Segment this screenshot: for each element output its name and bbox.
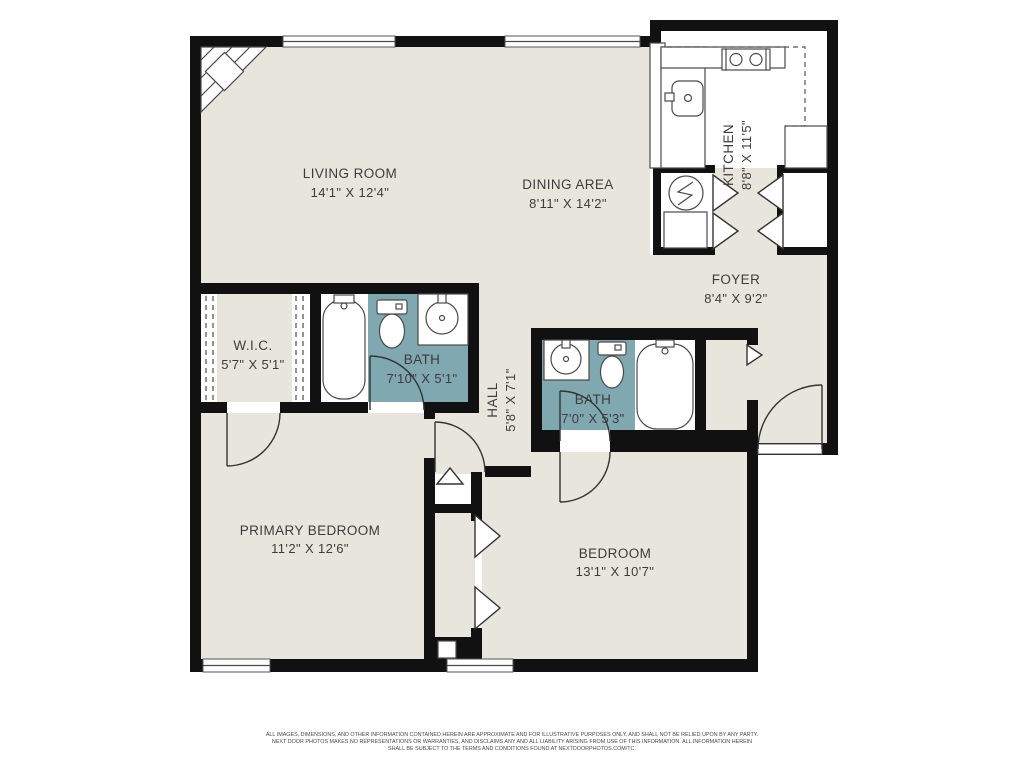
bedroom-dims: 13'1" X 10'7" xyxy=(576,564,655,579)
wall-segment xyxy=(531,328,758,340)
hall-label: HALL xyxy=(485,382,500,417)
hall-dims: 5'8" X 7'1" xyxy=(503,368,518,431)
disclaimer-line: NEXT DOOR PHOTOS MAKES NO REPRESENTATION… xyxy=(272,739,752,745)
living-room-dims: 14'1" X 12'4" xyxy=(311,185,390,200)
water-heater-icon xyxy=(664,176,707,248)
disclaimer: ALL IMAGES, DIMENSIONS, AND OTHER INFORM… xyxy=(266,732,758,752)
wall-segment xyxy=(650,20,838,31)
dining-area-dims: 8'11" X 14'2" xyxy=(529,196,607,211)
wall-segment xyxy=(190,36,201,413)
wall-segment xyxy=(531,328,542,441)
entry-threshold xyxy=(758,444,822,454)
wall-segment xyxy=(610,430,758,452)
wall-segment xyxy=(424,458,435,672)
foyer-closet-floor xyxy=(706,340,747,430)
living-dining-floor xyxy=(201,47,650,294)
wall-segment xyxy=(310,402,368,413)
floor-plan-page: LIVING ROOM 14'1" X 12'4" DINING AREA 8'… xyxy=(0,0,1024,768)
bath1-label: BATH xyxy=(404,352,441,367)
wall-segment xyxy=(653,165,661,255)
primary-doorway-floor xyxy=(424,419,435,458)
kitchen-dims: 8'8" X 11'5" xyxy=(739,120,754,190)
wic-label: W.I.C. xyxy=(233,338,272,353)
stove-icon xyxy=(722,49,770,70)
wall-segment xyxy=(190,402,227,413)
bedroom-label: BEDROOM xyxy=(579,546,652,561)
wall-segment xyxy=(424,413,435,419)
disclaimer-line: SHALL BE SUBJECT TO THE TERMS AND CONDIT… xyxy=(388,746,636,752)
window xyxy=(505,36,640,47)
dining-lower-floor xyxy=(531,283,658,328)
sink-icon xyxy=(418,294,468,345)
kitchen-label: KITCHEN xyxy=(721,124,736,186)
bath2-dims: 7'0" X 5'3" xyxy=(561,411,624,426)
dining-area-label: DINING AREA xyxy=(522,177,613,192)
wall-segment xyxy=(280,402,310,413)
wall-segment xyxy=(695,340,706,430)
foyer-dims: 8'4" X 9'2" xyxy=(704,291,767,306)
wall-segment xyxy=(827,20,838,455)
primary-bedroom-dims: 11'2" X 12'6" xyxy=(271,541,349,556)
window xyxy=(203,659,270,672)
wall-segment xyxy=(747,443,758,672)
living-room-label: LIVING ROOM xyxy=(303,166,397,181)
wic-rod-right xyxy=(292,294,310,402)
wall-segment xyxy=(310,294,321,413)
floor-plan-canvas: LIVING ROOM 14'1" X 12'4" DINING AREA 8'… xyxy=(0,0,1024,768)
window xyxy=(283,36,395,47)
wall-segment xyxy=(777,247,827,255)
wall-segment xyxy=(531,430,560,452)
pantry-area xyxy=(783,173,827,247)
toilet-icon xyxy=(377,300,407,348)
wic-rod-left xyxy=(201,294,217,402)
bath1-dims: 7'10" X 5'1" xyxy=(386,371,457,386)
bath2-label: BATH xyxy=(575,392,612,407)
wall-segment xyxy=(747,328,758,345)
disclaimer-line: ALL IMAGES, DIMENSIONS, AND OTHER INFORM… xyxy=(266,732,758,738)
sink-icon xyxy=(544,340,589,380)
counter xyxy=(785,126,827,168)
bedroom-closet-floor xyxy=(435,512,475,637)
wall-segment xyxy=(471,472,482,513)
wall-segment xyxy=(190,405,201,672)
bathtub-icon xyxy=(323,295,365,399)
foyer-label: FOYER xyxy=(712,272,761,287)
window xyxy=(447,659,513,672)
wall-segment xyxy=(468,283,479,413)
bathtub-icon xyxy=(637,340,693,429)
closet-niche xyxy=(438,641,456,658)
wall-segment xyxy=(190,283,475,294)
wall-segment xyxy=(747,400,758,443)
wall-segment xyxy=(485,466,531,477)
primary-bedroom-label: PRIMARY BEDROOM xyxy=(240,523,381,538)
toilet-icon xyxy=(598,342,626,388)
wic-dims: 5'7" X 5'1" xyxy=(221,357,284,372)
